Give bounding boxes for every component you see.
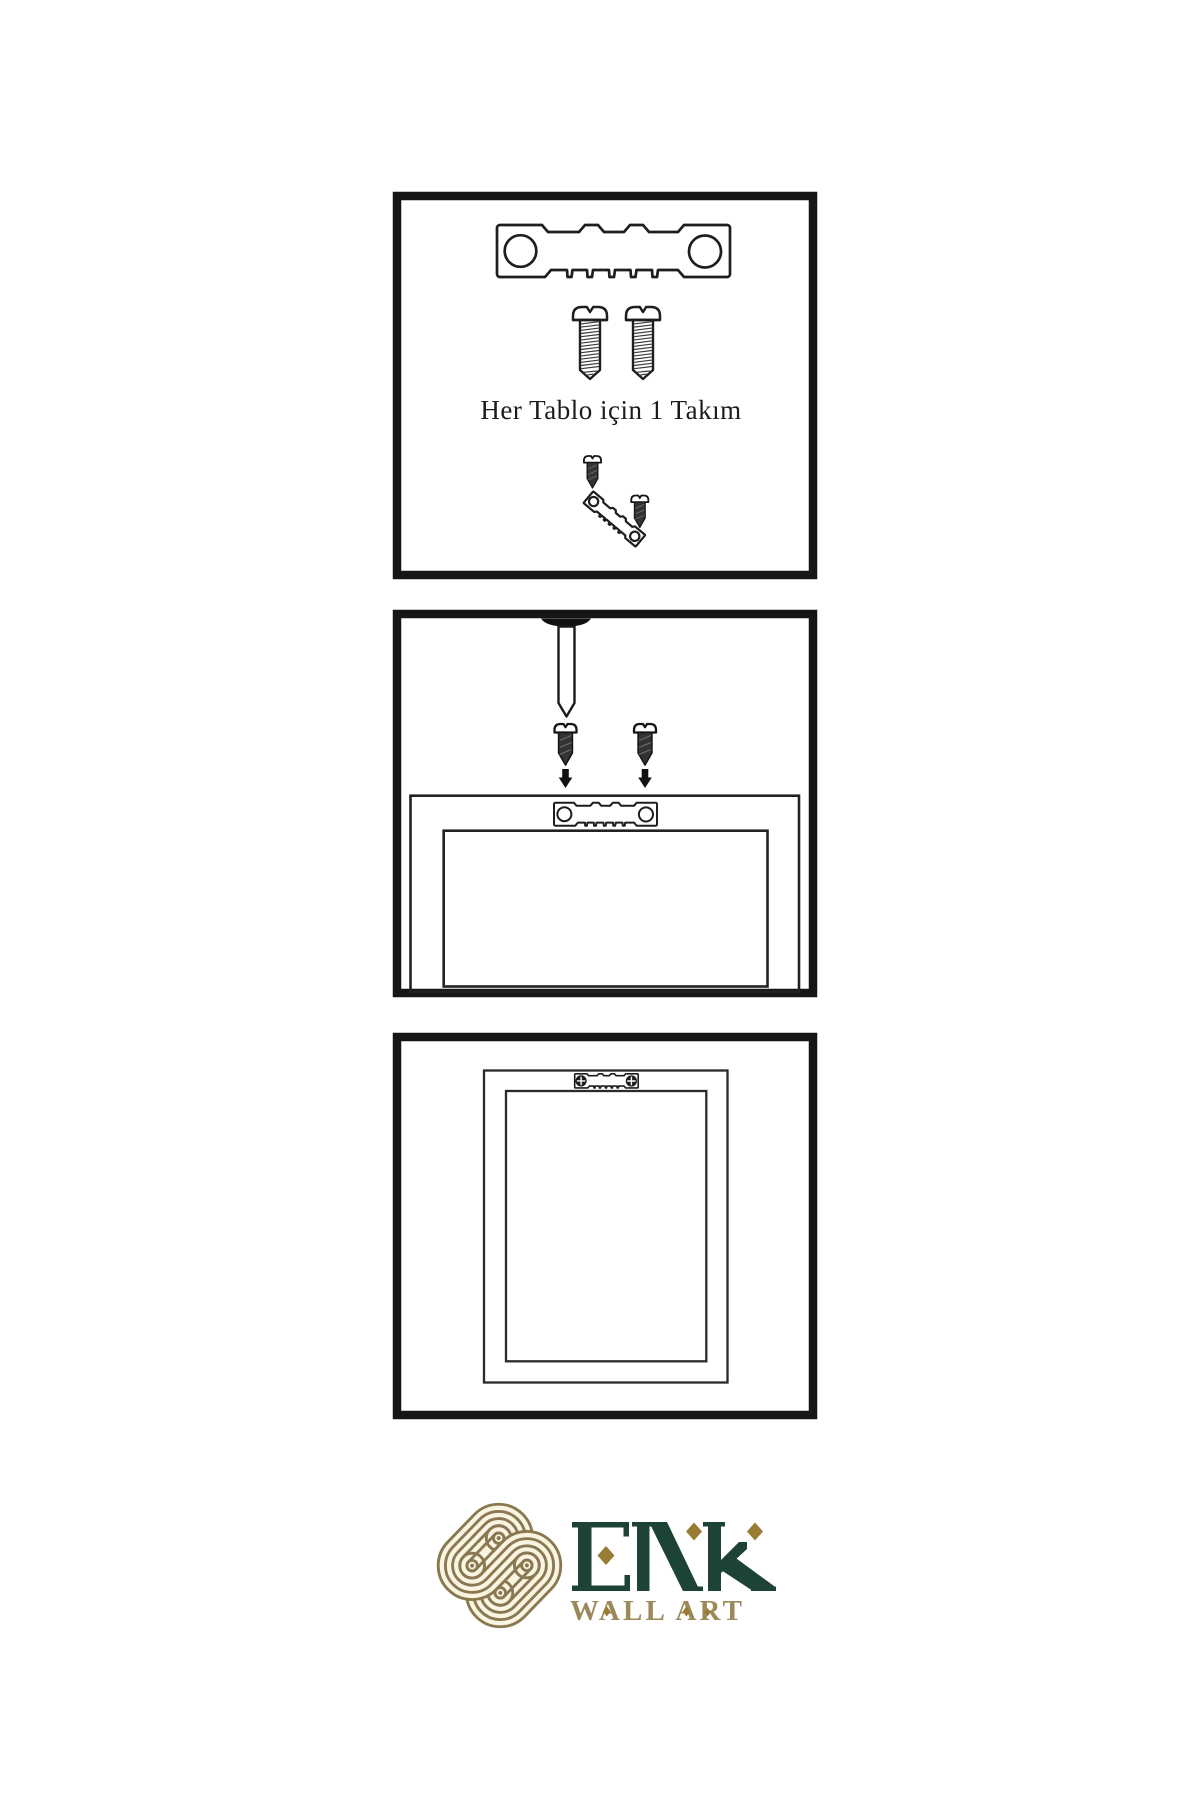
svg-text:Her Tablo için 1 Takım: Her Tablo için 1 Takım xyxy=(480,395,741,425)
svg-text:WALL ART: WALL ART xyxy=(570,1595,745,1627)
